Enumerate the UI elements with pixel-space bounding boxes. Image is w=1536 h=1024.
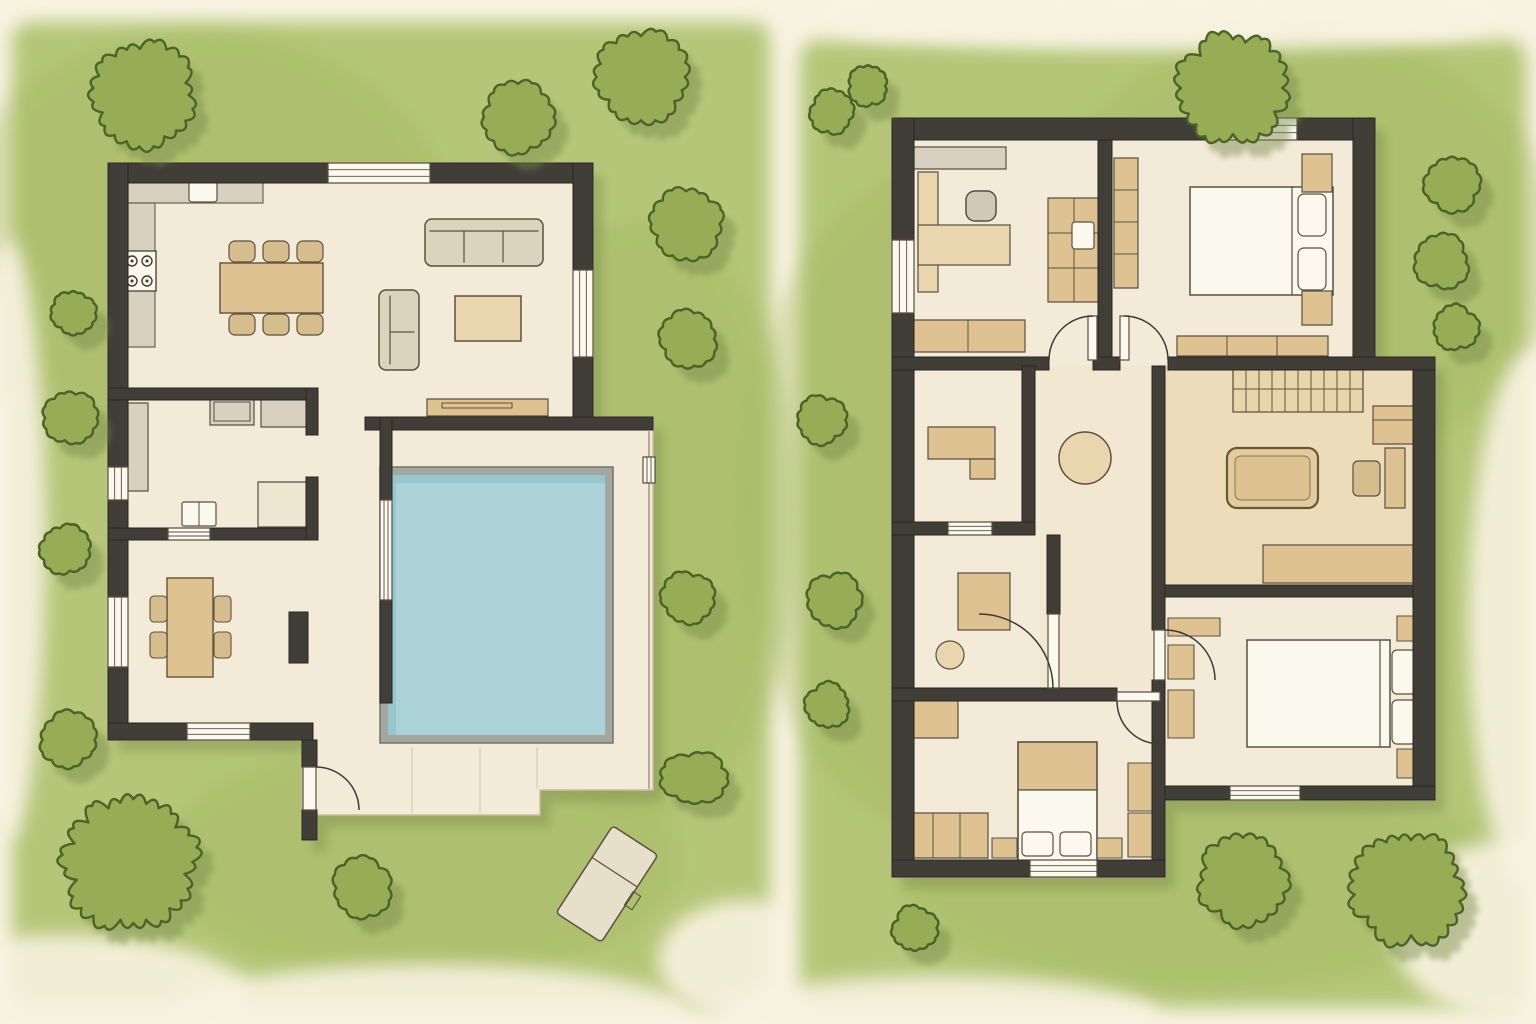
window: [380, 500, 392, 600]
coffee-table: [455, 296, 521, 341]
chair: [150, 632, 167, 658]
wall: [1098, 140, 1112, 357]
study-cabinet: [1373, 406, 1419, 444]
shower: [258, 482, 308, 527]
bed: [1247, 640, 1390, 747]
wall: [892, 522, 948, 535]
chair: [214, 596, 231, 622]
door-leaf: [1120, 316, 1129, 360]
wall: [1022, 366, 1035, 522]
wall: [108, 163, 328, 183]
pillow: [1022, 832, 1053, 856]
office-appliance: [1072, 222, 1094, 249]
window: [108, 467, 128, 500]
laundry-counter: [928, 427, 995, 459]
window-glass: [948, 522, 992, 535]
chair: [263, 314, 289, 335]
wall: [1097, 860, 1165, 877]
wall: [210, 528, 306, 540]
wall: [302, 810, 317, 840]
window: [187, 723, 250, 740]
lawn-fade: [830, 2, 1490, 50]
window-glass: [108, 467, 128, 500]
window-glass: [328, 163, 430, 183]
stove-burner-dot: [131, 280, 134, 283]
bedroom3-cabinet: [1168, 690, 1194, 738]
wall: [108, 500, 128, 597]
wall: [1168, 357, 1435, 370]
sofa: [425, 219, 543, 266]
wall: [992, 522, 1035, 535]
pool-water: [388, 475, 605, 735]
window-glass: [643, 457, 655, 483]
chair: [150, 596, 167, 622]
office-counter: [914, 147, 1006, 169]
bedroom2-cabinet: [1128, 763, 1153, 811]
nightstand: [992, 838, 1017, 858]
ground-floor-plan: [0, 22, 838, 1024]
stove-burner-dot: [131, 260, 134, 263]
breakfast-table: [167, 578, 213, 677]
bedroom2-cabinet: [1128, 813, 1153, 857]
window: [1230, 786, 1300, 800]
wall: [306, 477, 318, 540]
wall: [1047, 535, 1060, 614]
wall: [380, 600, 392, 703]
chair: [229, 314, 255, 335]
pillow: [1392, 700, 1416, 744]
wall: [108, 388, 318, 400]
bedroom2-dresser: [905, 813, 988, 858]
window-glass: [168, 528, 210, 540]
tree-foliage: [849, 65, 887, 106]
window-glass: [380, 500, 392, 600]
chair: [297, 241, 323, 262]
upper-floor-plan: [720, 2, 1536, 1024]
wall: [1152, 680, 1165, 877]
study-desk: [1385, 448, 1405, 508]
wall: [108, 723, 187, 740]
window: [643, 457, 655, 483]
wall: [1165, 786, 1230, 800]
pillow: [1298, 248, 1326, 290]
interior-window: [948, 522, 992, 535]
stool: [936, 641, 964, 669]
window: [328, 163, 430, 183]
wall: [1300, 786, 1435, 800]
door-leaf: [1117, 692, 1160, 701]
floor-plan-illustration: [0, 0, 1536, 1024]
door-leaf: [1088, 316, 1097, 360]
wall: [573, 163, 593, 270]
wardrobe: [1302, 291, 1332, 325]
chair: [297, 314, 323, 335]
chair: [229, 241, 255, 262]
tree-foliage: [660, 752, 728, 804]
window-glass: [187, 723, 250, 740]
window: [1030, 860, 1097, 877]
bedroom3-cabinet: [1168, 645, 1194, 679]
laundry-counter-return: [970, 459, 995, 479]
wardrobe: [1302, 154, 1332, 192]
wall: [892, 118, 1223, 140]
fireplace: [289, 612, 308, 663]
stove-burner-dot: [146, 280, 149, 283]
bed-blanket: [1018, 742, 1097, 790]
tree-foliage: [43, 392, 99, 445]
bedroom1-bench: [1177, 336, 1328, 356]
wall: [302, 740, 317, 767]
wall: [108, 528, 168, 540]
wall: [1353, 118, 1375, 366]
loveseat: [379, 290, 419, 370]
window-glass: [1030, 860, 1097, 877]
bathroom-unit: [261, 398, 310, 427]
study-chair: [1353, 461, 1380, 496]
wall: [892, 313, 914, 877]
door-leaf: [303, 767, 316, 810]
wall: [892, 688, 1117, 701]
wall: [1165, 585, 1413, 597]
hall-table: [1059, 432, 1111, 484]
rug-inner: [1235, 456, 1310, 500]
pillow: [1060, 832, 1091, 856]
bedroom1-shelf: [1114, 158, 1138, 288]
door-leaf: [1154, 630, 1165, 680]
floor-plan-canvas: [0, 0, 1536, 1024]
dining-table: [220, 263, 323, 313]
study-counter: [1263, 545, 1413, 583]
bedroom3-shelf: [1168, 618, 1220, 636]
office-desk: [918, 225, 1010, 265]
wall: [430, 163, 593, 183]
wall: [892, 118, 914, 240]
chair: [214, 632, 231, 658]
wall: [306, 388, 318, 435]
office-chair: [966, 191, 996, 221]
window-glass: [108, 597, 128, 667]
window: [892, 240, 914, 313]
window: [573, 270, 593, 357]
small-room-desk: [958, 573, 1010, 630]
door-leaf: [1048, 614, 1059, 688]
chair: [263, 241, 289, 262]
wall: [1152, 366, 1165, 630]
window-glass: [1230, 786, 1300, 800]
window-glass: [892, 240, 914, 313]
wall: [892, 860, 1030, 877]
stove-burner-dot: [146, 260, 149, 263]
bathroom-cabinet: [128, 403, 148, 491]
interior-window: [168, 528, 210, 540]
pillow: [1298, 194, 1326, 236]
window-glass: [573, 270, 593, 357]
wall: [250, 723, 313, 740]
wall: [108, 163, 128, 467]
wall: [380, 417, 392, 500]
nightstand: [1097, 838, 1122, 858]
window: [108, 597, 128, 667]
wall: [365, 417, 653, 430]
stairs: [1233, 366, 1363, 412]
wall: [1413, 358, 1435, 800]
pillow: [1392, 650, 1416, 694]
